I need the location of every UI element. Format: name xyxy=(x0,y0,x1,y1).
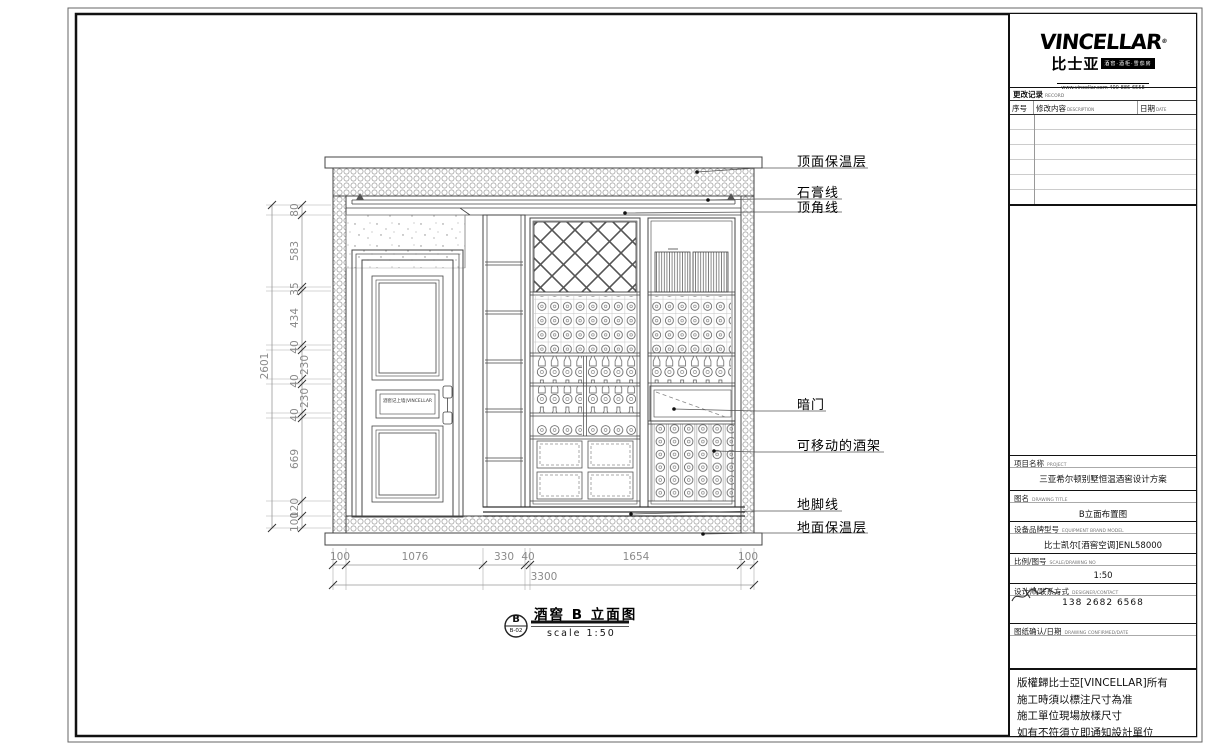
section-scale: 比例/图号SCALE/DRAWING NO 1:50 xyxy=(1010,553,1196,583)
brand-chinese: 比士亚 xyxy=(1051,53,1099,74)
wine-crate xyxy=(693,252,728,292)
logo-block: VINCELLAR® 比士亚 酒窖·酒柜·雪茄房 www.vincellar.c… xyxy=(1010,14,1196,88)
callout-floor-insulation: 地面保温层 xyxy=(797,517,867,536)
brand-logo: VINCELLAR® xyxy=(1009,31,1197,53)
revision-record-title: 更改记录RECORD xyxy=(1010,88,1196,101)
section-designer: 设计师/联系方式DESIGNER/CONTACT 138 2682 6568 xyxy=(1010,583,1196,623)
callout-hidden-door: 暗门 xyxy=(797,394,825,413)
bottle-front-grid xyxy=(534,296,636,353)
designer-phone: 138 2682 6568 xyxy=(1062,598,1144,608)
callout-movable-rack: 可移动的酒架 xyxy=(797,435,881,454)
disclaimer-block: 版權歸比士亞[VINCELLAR]所有 施工時須以標注尺寸為准 施工單位現場放樣… xyxy=(1010,668,1196,736)
bottle-front-grid xyxy=(652,296,731,353)
stamp-title: 酒窖 B 立面图 xyxy=(534,603,637,623)
col-date: 日期DATE xyxy=(1138,101,1196,114)
dim-bottom-4: 1654 xyxy=(606,551,666,563)
movable-rack-grid xyxy=(651,424,734,501)
section-drawing-title: 图名DRAWING TITLE B立面布置图 xyxy=(1010,490,1196,521)
revision-table-header: 序号NO 修改内容DESCRIPTION 日期DATE xyxy=(1010,101,1196,115)
wine-crate xyxy=(655,252,690,292)
revision-table-rows xyxy=(1010,115,1196,206)
drawing-sheet: 顶面保温层 石膏线 顶角线 暗门 可移动的酒架 地脚线 地面保温层 80 583… xyxy=(0,0,1210,750)
brand-badge: 酒窖·酒柜·雪茄房 xyxy=(1101,58,1154,69)
stamp-scale: scale 1:50 xyxy=(547,628,616,639)
disclaimer-line: 施工時須以標注尺寸為准 xyxy=(1017,692,1189,709)
dim-left-11: 100 xyxy=(289,497,301,547)
door-plaque-text: 酒窖记上墙|VINCELLAR xyxy=(379,398,436,404)
section-equipment: 设备品牌型号EQUIPMENT BRAND MODEL 比士凯尔[酒窖空调]EN… xyxy=(1010,521,1196,553)
dim-bottom-1: 1076 xyxy=(385,551,445,563)
dim-left-9: 669 xyxy=(289,434,301,484)
section-project: 项目名称PROJECT 三亚希尔顿别墅恒温酒窖设计方案 xyxy=(1010,455,1196,490)
diamond-lattice xyxy=(534,222,636,292)
dim-bottom-5: 100 xyxy=(718,551,778,563)
title-block-panel: VINCELLAR® 比士亚 酒窖·酒柜·雪茄房 www.vincellar.c… xyxy=(1008,14,1196,736)
dim-bottom-total: 3300 xyxy=(514,571,574,583)
col-description: 修改内容DESCRIPTION xyxy=(1034,101,1138,114)
drawing-title-value: B立面布置图 xyxy=(1010,503,1196,520)
scale-value: 1:50 xyxy=(1010,566,1196,581)
registered-mark-icon: ® xyxy=(1161,38,1167,45)
section-confirm: 图纸确认/日期DRAWING CONFIRMED/DATE xyxy=(1010,623,1196,668)
designer-signature xyxy=(1010,584,1062,606)
dim-bottom-0: 100 xyxy=(310,551,370,563)
col-no: 序号NO xyxy=(1010,101,1034,114)
callout-skirting-line: 地脚线 xyxy=(797,494,839,513)
dim-left-8: 40 xyxy=(289,390,301,440)
dim-left-total: 2601 xyxy=(259,341,271,391)
standing-bottles-row xyxy=(652,356,731,383)
disclaimer-line: 版權歸比士亞[VINCELLAR]所有 xyxy=(1017,675,1189,692)
callout-ceiling-line: 顶角线 xyxy=(797,197,839,216)
disclaimer-line: 施工單位現場放樣尺寸 xyxy=(1017,708,1189,725)
stamp-bubble-code: B-02 xyxy=(502,628,530,634)
disclaimer-line: 如有不符須立即通知設計單位 xyxy=(1017,725,1189,742)
callout-top-insulation: 顶面保温层 xyxy=(797,151,867,170)
dim-bottom-3: 40 xyxy=(498,551,558,563)
project-name: 三亚希尔顿别墅恒温酒窖设计方案 xyxy=(1010,468,1196,485)
stamp-bubble-letter: B xyxy=(508,614,524,625)
equipment-value: 比士凯尔[酒窖空调]ENL58000 xyxy=(1010,534,1196,551)
